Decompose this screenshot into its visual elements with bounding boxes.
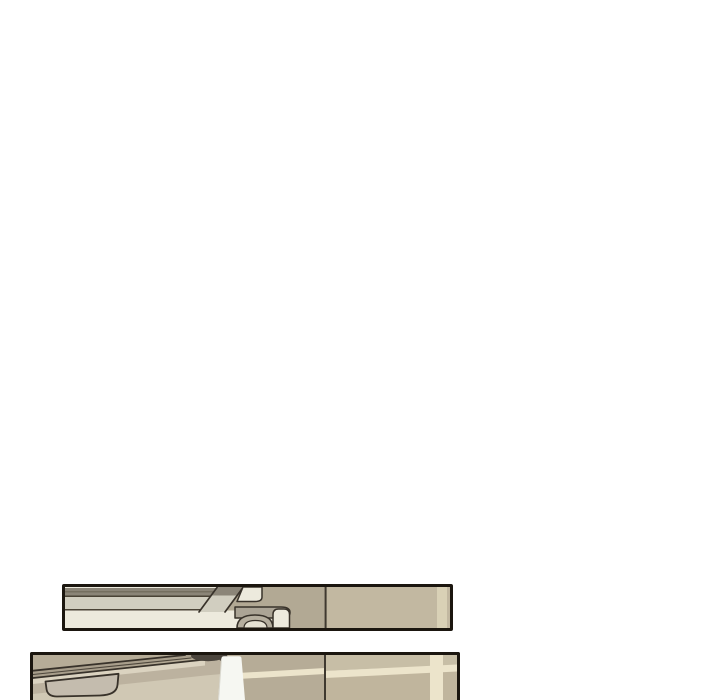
wall-highlight-stripe xyxy=(437,587,447,628)
white-pillar xyxy=(218,656,245,700)
desk-edge-dark-line xyxy=(65,596,211,598)
desk-top-band-inner-line xyxy=(65,591,214,592)
desk-top-hairline xyxy=(65,587,217,588)
panel-2-artwork xyxy=(33,655,457,700)
panel-1-artwork xyxy=(65,587,450,628)
comic-panel-2 xyxy=(30,652,460,700)
webtoon-page xyxy=(0,0,720,700)
tile-grout-vertical xyxy=(430,655,443,700)
comic-panel-1 xyxy=(62,584,453,631)
rounded-leg xyxy=(273,609,290,628)
desk-cream-top-line xyxy=(65,609,201,611)
desk-light-band xyxy=(65,597,210,609)
wall-corner-line xyxy=(325,587,327,628)
wall-corner-line xyxy=(324,655,326,700)
arch-inner xyxy=(244,621,267,629)
wall-right xyxy=(326,587,450,628)
